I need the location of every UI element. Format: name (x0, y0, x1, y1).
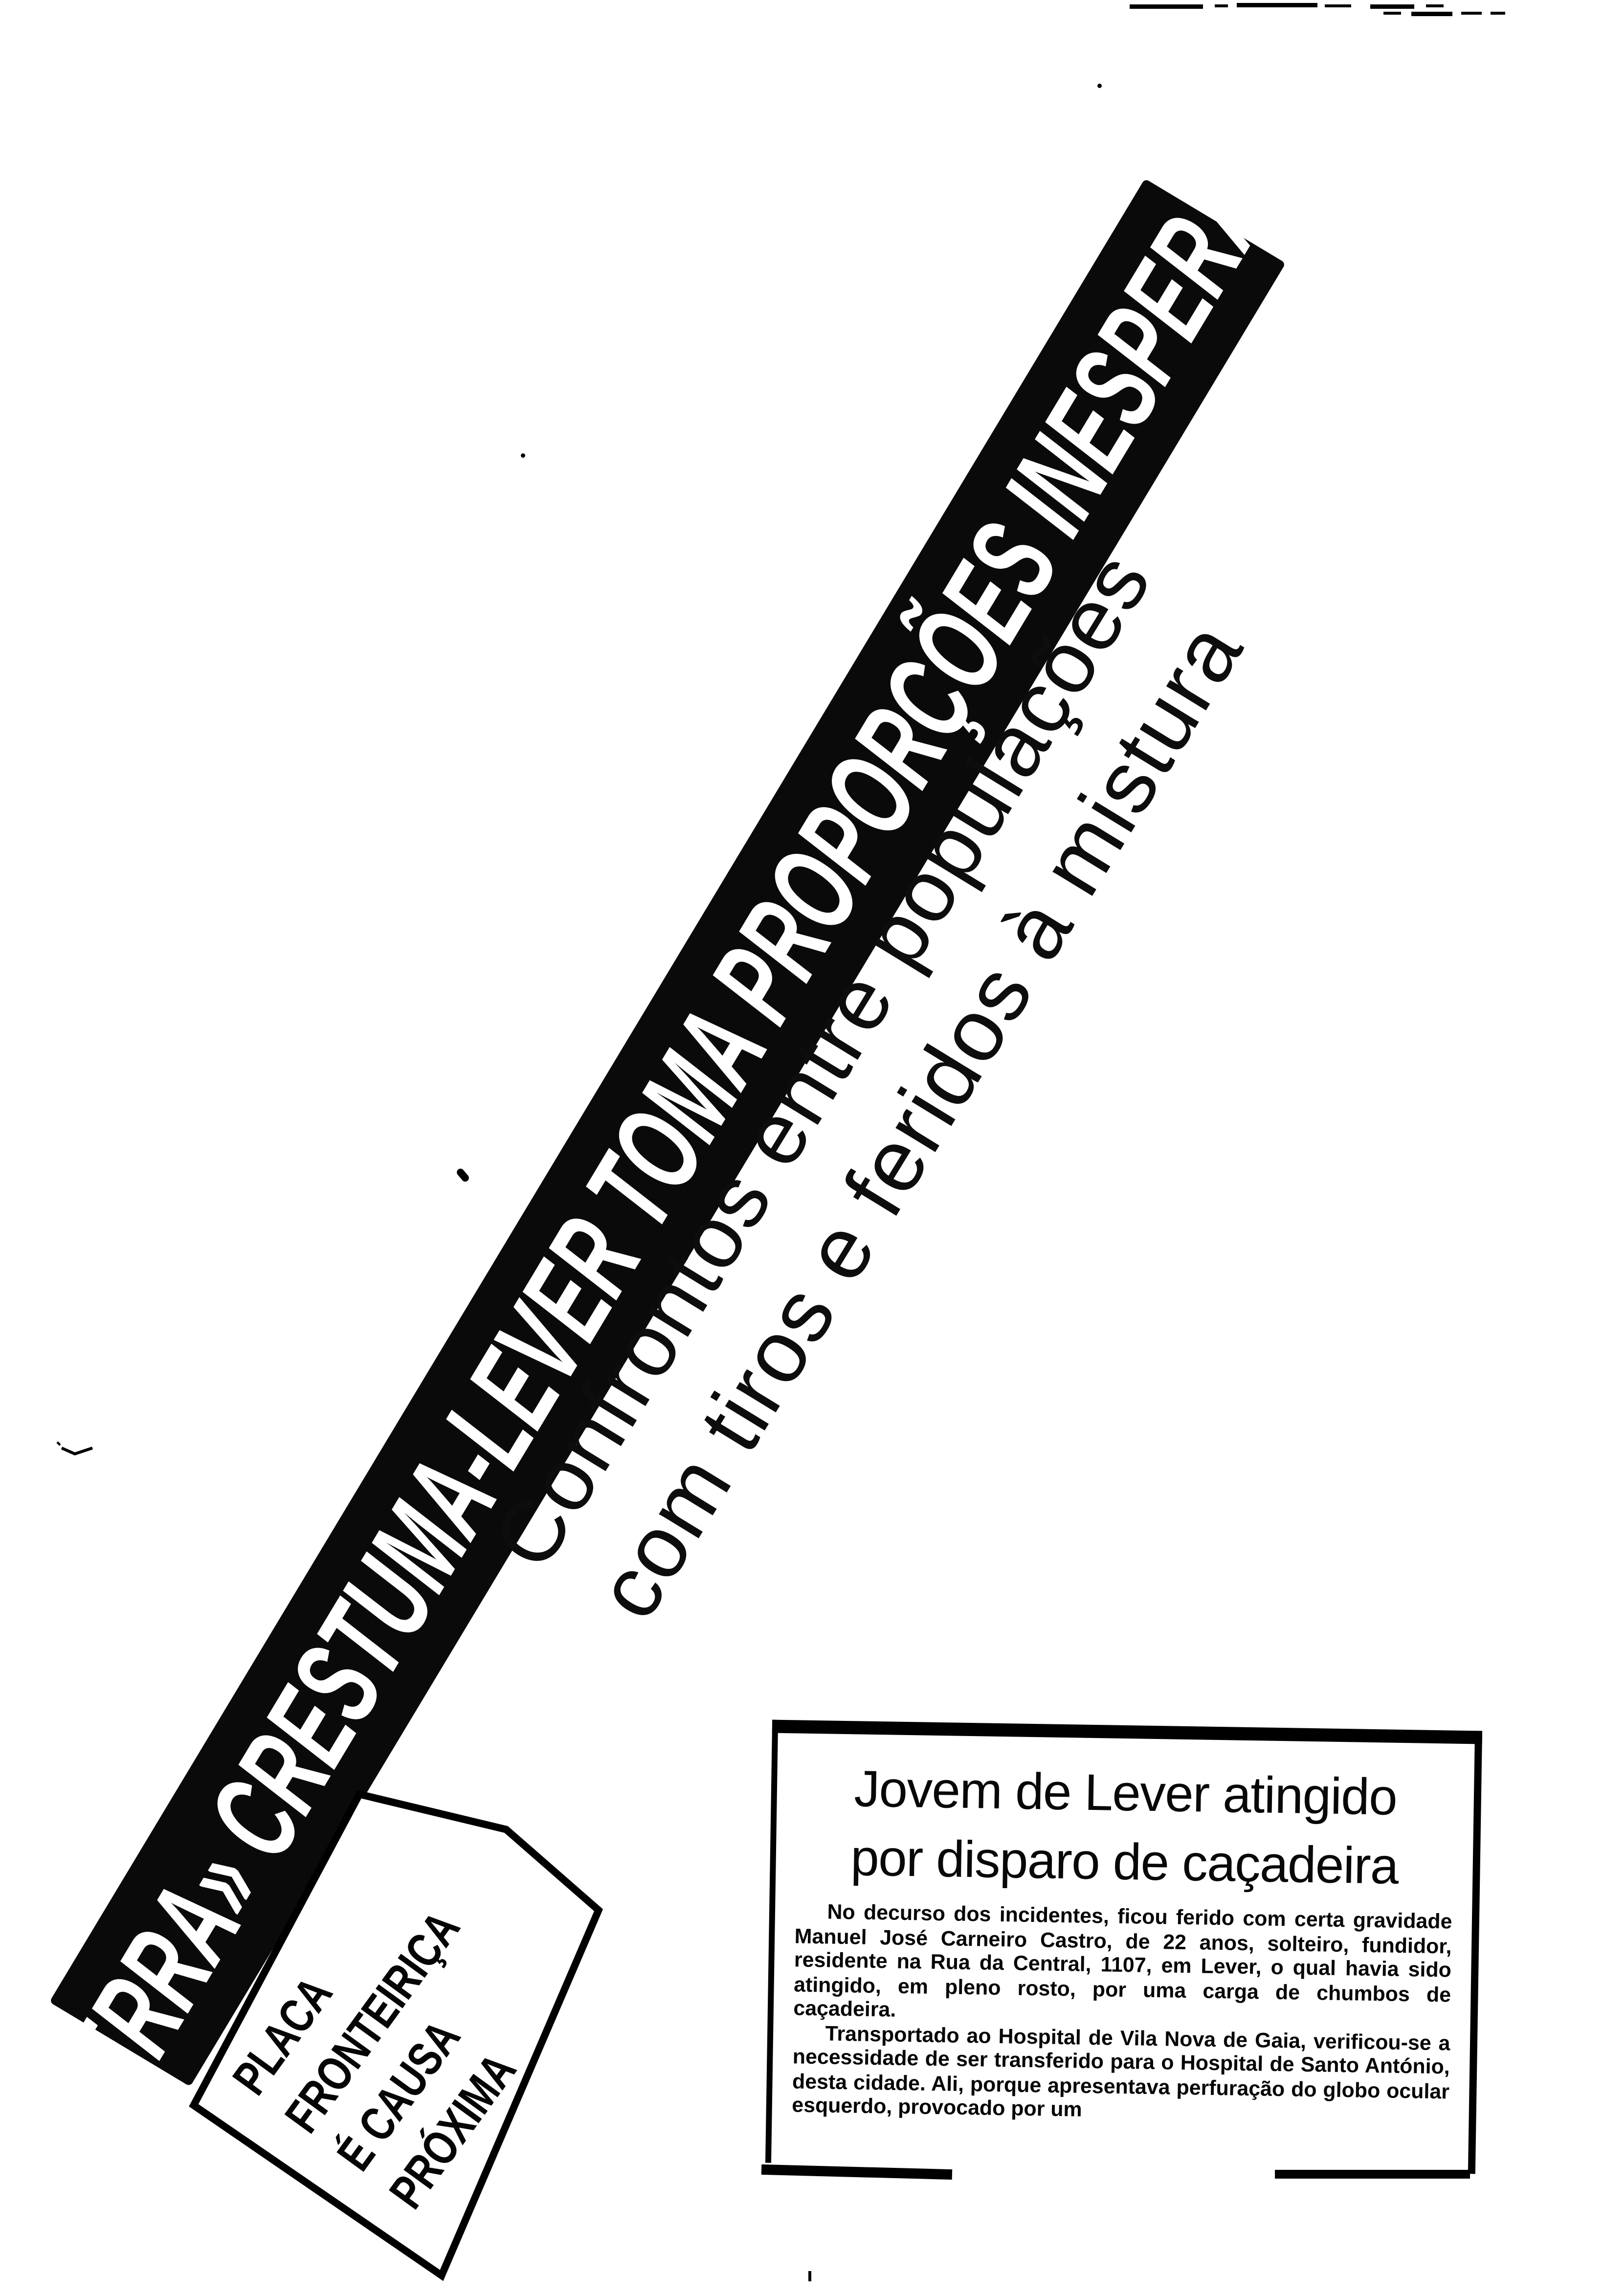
scan-artifact-dot (1097, 84, 1102, 88)
scan-artifact-dash (1237, 3, 1317, 7)
article-headline-line-1: Jovem de Lever atingido (777, 1754, 1474, 1833)
scan-artifact-dash (1491, 12, 1505, 15)
scan-artifact-dash (1130, 4, 1203, 9)
article-box-bottom-border-right (1275, 2170, 1470, 2179)
scan-artifact-comma (455, 1167, 470, 1183)
article-paragraph: No decurso dos incidentes, ficou ferido … (793, 1900, 1452, 2032)
newspaper-clipping-page: «GUERRA» CRESTUMA-LEVER TOMA PROPORÇÕES … (0, 0, 1604, 2285)
scan-artifact-dash (1426, 4, 1444, 7)
scan-artifact-squiggle (56, 1441, 97, 1458)
scan-artifact-dot (521, 453, 525, 458)
scan-artifact-dash (1215, 4, 1228, 7)
scan-artifact-dash (1411, 12, 1452, 16)
article-box: Jovem de Lever atingido por disparo de c… (765, 1720, 1482, 2174)
scan-artifact-dash (1461, 12, 1482, 15)
scan-artifact-dash (1383, 12, 1401, 15)
scan-artifact-dash (1370, 4, 1414, 9)
article-paragraph: Transportado ao Hospital de Vila Nova de… (792, 2022, 1450, 2129)
scan-artifact-dash (1325, 4, 1351, 7)
article-headline: Jovem de Lever atingido por disparo de c… (776, 1754, 1474, 1902)
subtitle-line-1: Confrontos entre populações (375, 380, 1270, 1741)
article-box-bottom-border-left (761, 2164, 952, 2180)
article-body: No decurso dos incidentes, ficou ferido … (792, 1900, 1452, 2129)
article-headline-line-2: por disparo de caçadeira (776, 1823, 1473, 1902)
diagonal-subtitle: Confrontos entre populações com tiros e … (375, 380, 1385, 1812)
scan-artifact-tick (808, 2271, 811, 2281)
